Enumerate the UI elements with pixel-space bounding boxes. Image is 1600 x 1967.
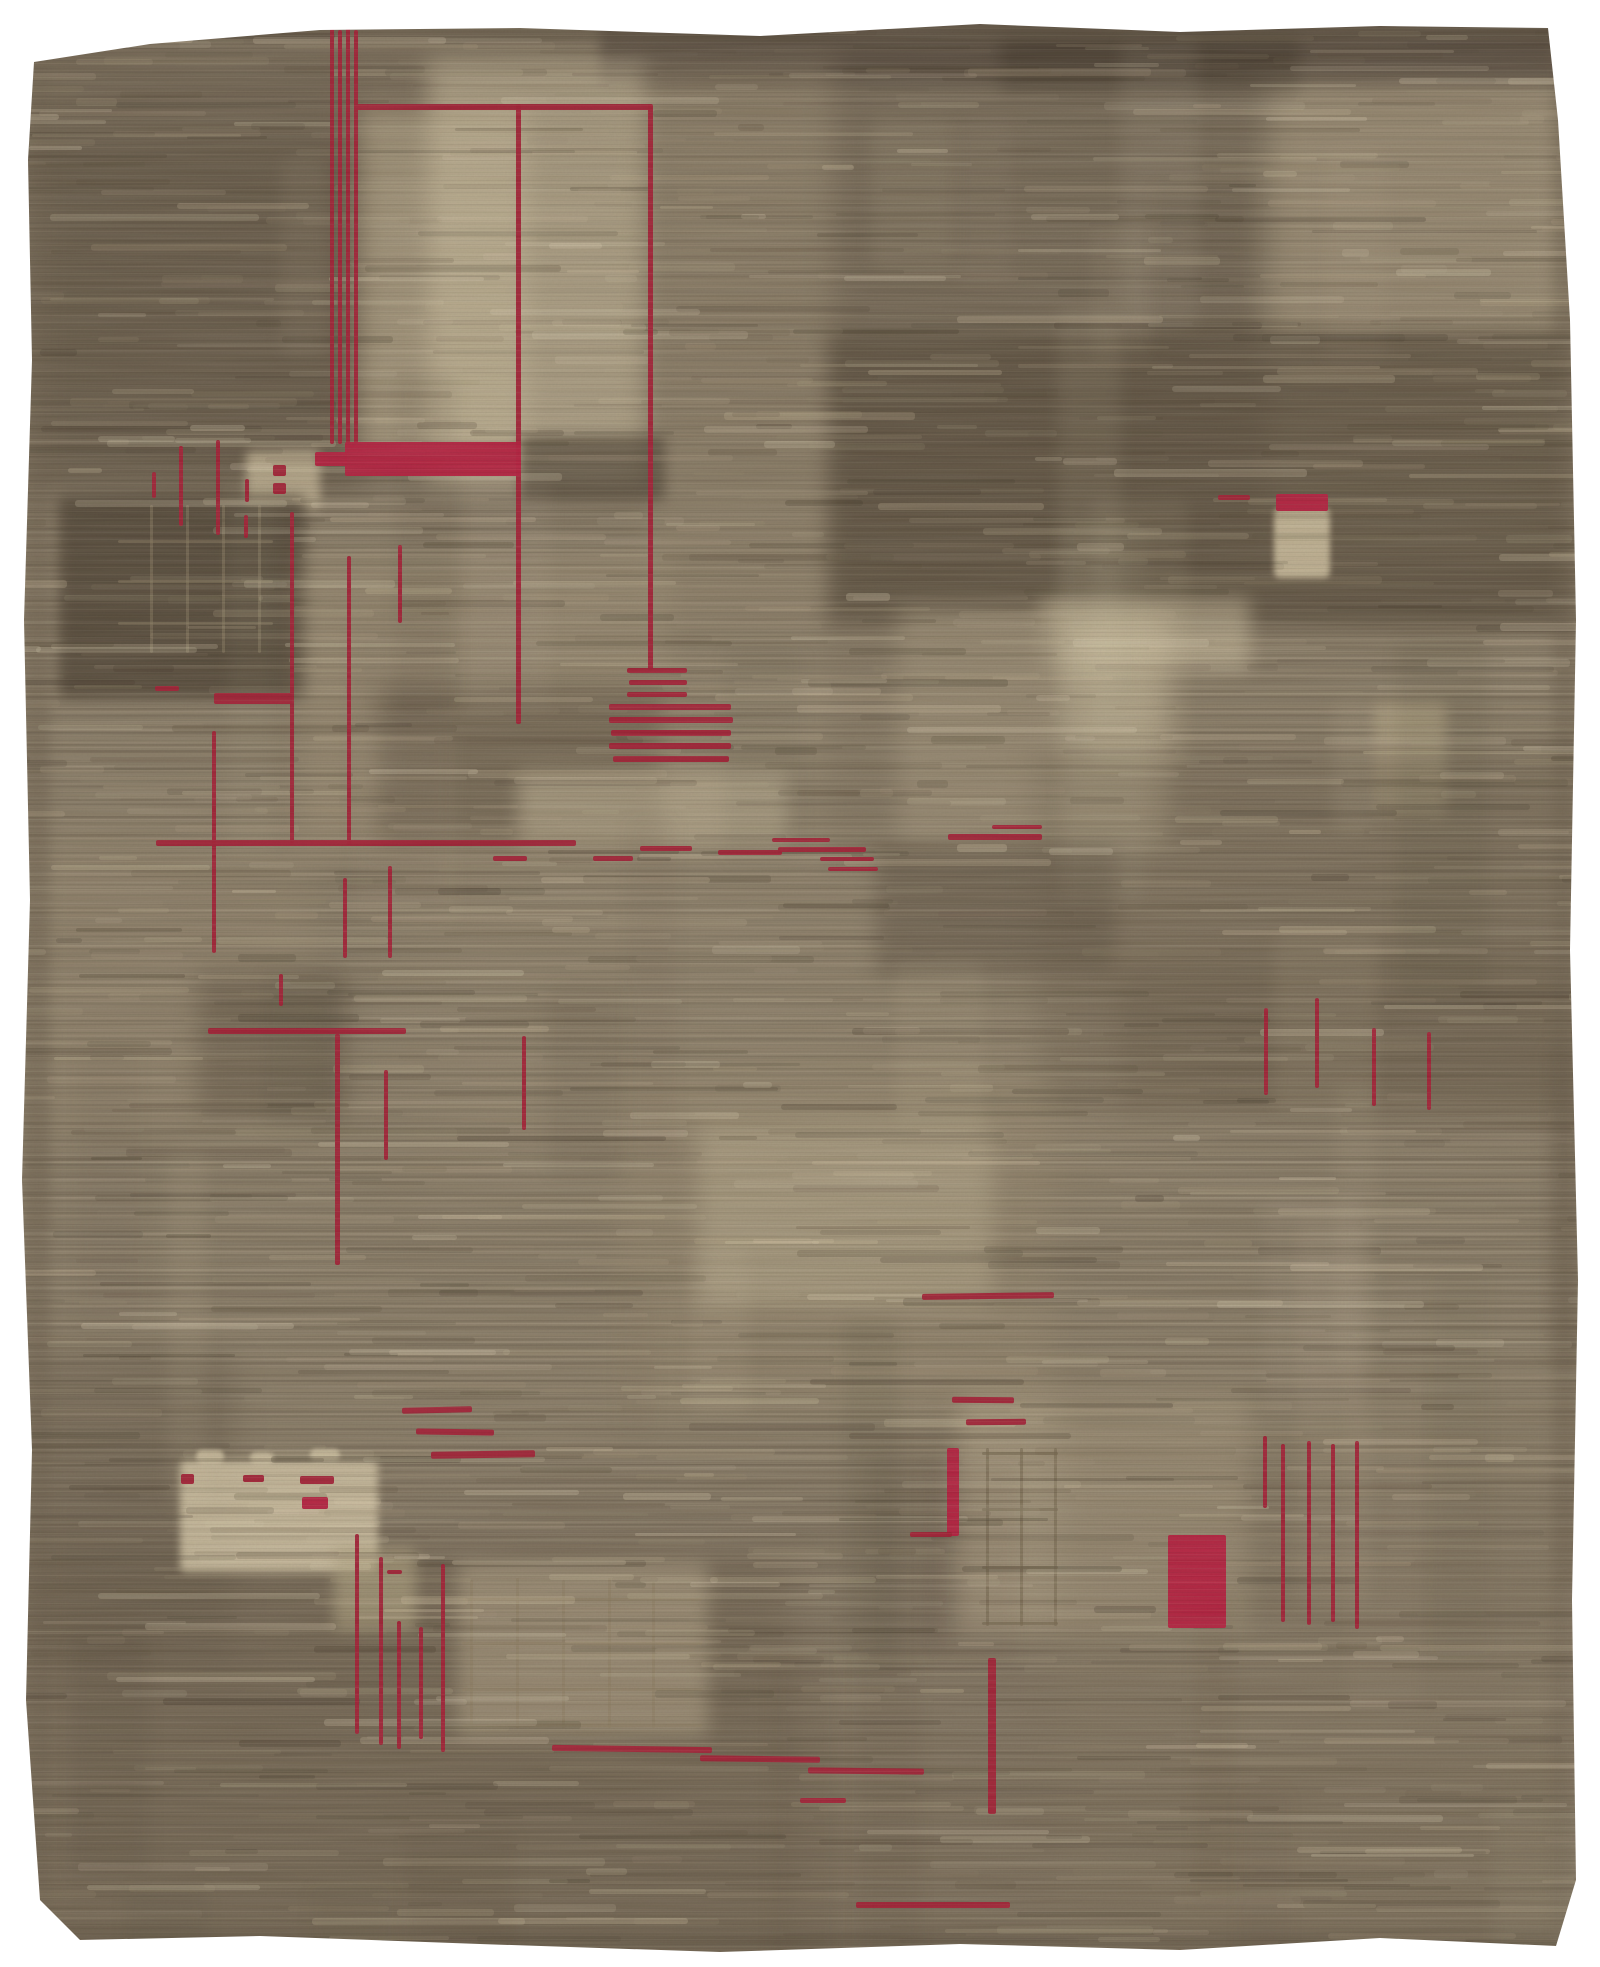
weave-streak [896, 94, 1059, 101]
weave-streak [1584, 814, 1600, 821]
weave-streak [1568, 224, 1600, 230]
red-accent-cluster-line-5 [441, 1564, 445, 1752]
weave-streak [83, 162, 145, 167]
weave-streak [697, 1160, 777, 1163]
weave-streak [23, 580, 68, 588]
weave-soft-band [1239, 1788, 1289, 1967]
weave-soft-band [79, 1046, 139, 1325]
red-accent-mid-dash-a [640, 846, 692, 851]
weave-streak [670, 1505, 730, 1509]
weave-streak [582, 810, 620, 814]
weave-streak [1556, 155, 1598, 160]
weave-streak [1075, 1495, 1252, 1500]
weave-streak [678, 196, 749, 201]
weave-streak [212, 1277, 414, 1283]
weave-streak [1098, 1937, 1160, 1942]
weave-streak [1578, 606, 1600, 614]
red-accent-slot-cap [1276, 494, 1328, 511]
weave-streak [1514, 778, 1600, 785]
weave-streak [610, 175, 770, 180]
weave-streak [1208, 460, 1363, 466]
weave-streak [684, 1473, 714, 1477]
weave-streak [1570, 902, 1600, 906]
weave-streak [738, 559, 784, 563]
weave-streak [1463, 1121, 1600, 1128]
weave-streak [174, 1769, 328, 1773]
weave-streak [0, 408, 144, 412]
weave-streak [1029, 1117, 1063, 1120]
red-accent-t-hline [208, 1028, 406, 1034]
weave-streak [437, 216, 589, 222]
weave-soft-band [1434, 1270, 1489, 1655]
weave-streak [732, 412, 780, 417]
weave-streak [154, 1567, 342, 1571]
weave-streak [0, 1515, 193, 1519]
red-accent-castle-bit-2 [243, 1475, 264, 1482]
weave-streak [598, 1195, 663, 1201]
weave-streak [345, 258, 454, 263]
weave-soft-band [924, 1464, 1016, 1667]
weave-streak [719, 1136, 756, 1140]
weave-streak [877, 1220, 1037, 1225]
red-accent-hang-2 [388, 866, 392, 958]
weave-streak [1117, 1312, 1209, 1319]
weave-streak [1426, 35, 1467, 40]
weave-streak [1260, 49, 1479, 52]
weave-streak [302, 554, 486, 558]
weave-streak [1032, 1843, 1209, 1848]
weave-streak [1263, 375, 1394, 383]
weave-streak [465, 1802, 596, 1809]
weave-streak [0, 1808, 79, 1814]
weave-streak [1103, 1032, 1267, 1037]
weave-streak [399, 218, 442, 224]
weave-streak [1406, 90, 1553, 95]
weave-streak [1077, 1756, 1171, 1760]
weave-streak [1269, 444, 1489, 450]
weave-streak [429, 1824, 480, 1827]
weave-streak [1297, 1847, 1462, 1853]
red-accent-quad-line-2 [1315, 998, 1319, 1088]
weave-streak [552, 927, 590, 934]
weave-streak [1279, 1177, 1336, 1180]
weave-streak [1506, 535, 1572, 543]
weave-streak [1531, 226, 1589, 230]
weave-streak [1498, 590, 1553, 597]
weave-streak [957, 844, 1007, 852]
weave-streak [845, 360, 999, 367]
weave-streak [766, 357, 809, 363]
weave-streak [699, 521, 765, 525]
red-accent-drip-4 [398, 545, 402, 623]
red-accent-left-tick-3 [216, 440, 220, 535]
weave-streak [791, 636, 905, 640]
weave-soft-band [281, 157, 327, 357]
weave-streak [746, 901, 899, 905]
weave-streak [1583, 31, 1600, 39]
weave-streak [676, 525, 720, 530]
weave-streak [847, 479, 1015, 483]
weave-streak [12, 1096, 55, 1100]
weave-streak [1409, 474, 1600, 478]
weave-streak [1185, 19, 1257, 22]
weave-streak [1347, 424, 1549, 430]
weave-streak [1160, 1767, 1367, 1771]
red-accent-cluster-line-2 [379, 1557, 383, 1745]
weave-streak [98, 1593, 320, 1599]
red-accent-comb-bar [214, 693, 292, 704]
weave-streak [256, 1343, 406, 1346]
weave-streak [1114, 469, 1307, 476]
weave-streak [884, 909, 1048, 915]
weave-streak [600, 614, 675, 620]
weave-streak [50, 214, 259, 222]
weave-soft-band [264, 969, 338, 1129]
weave-streak [249, 1474, 470, 1477]
weave-streak [55, 835, 238, 839]
weave-streak [549, 1879, 591, 1883]
weave-streak [764, 564, 922, 568]
red-accent-mid-hline [156, 840, 576, 846]
weave-streak [450, 150, 636, 156]
weave-soft-band [228, 477, 276, 856]
weave-streak [458, 1522, 565, 1529]
weave-streak [552, 1557, 665, 1562]
weave-streak [1583, 1049, 1600, 1055]
weave-streak [358, 1616, 479, 1619]
weave-streak [1043, 1417, 1195, 1424]
weave-streak [1471, 598, 1563, 602]
weave-streak [747, 1553, 843, 1559]
weave-streak [549, 1574, 634, 1580]
weave-streak [1188, 1122, 1256, 1127]
weave-streak [869, 87, 929, 92]
weave-streak [195, 1867, 230, 1870]
weave-streak [1480, 301, 1600, 306]
weave-streak [931, 736, 1005, 744]
weave-streak [1404, 1140, 1445, 1147]
weave-streak [955, 1881, 1016, 1889]
weave-streak [749, 543, 914, 548]
weave-streak [476, 1478, 677, 1483]
red-accent-band-line-1 [330, 28, 334, 444]
weave-streak [1094, 1606, 1156, 1613]
weave-streak [1169, 1443, 1271, 1446]
red-accent-stripe-w4 [609, 743, 731, 749]
weave-streak [677, 188, 714, 194]
weave-streak [429, 1245, 534, 1250]
weave-streak [749, 275, 961, 279]
weave-streak [745, 606, 811, 611]
red-accent-castle-bit-1 [181, 1474, 194, 1484]
weave-streak [610, 228, 768, 232]
weave-streak [101, 190, 226, 195]
weave-streak [903, 1403, 953, 1407]
weave-streak [1400, 248, 1458, 255]
weave-soft-band [859, 1651, 920, 1967]
weave-streak [764, 441, 836, 448]
weave-streak [899, 1938, 1079, 1943]
red-accent-dash-h [828, 867, 878, 871]
weave-streak [26, 154, 167, 158]
weave-streak [549, 243, 603, 249]
weave-soft-band [1264, 1197, 1360, 1412]
weave-streak [1020, 1037, 1227, 1041]
weave-streak [274, 1753, 331, 1756]
weave-streak [943, 925, 1096, 928]
red-accent-left-tick-1 [152, 472, 156, 498]
weave-streak [1486, 211, 1600, 216]
weave-soft-band [310, 1885, 391, 1967]
weave-streak [976, 1808, 1044, 1815]
weave-soft-band [1492, 1798, 1597, 1967]
weave-streak [978, 1065, 1138, 1073]
weave-streak [334, 185, 533, 190]
weave-streak [1549, 552, 1600, 557]
weave-streak [1279, 562, 1378, 567]
weave-streak [1576, 251, 1600, 255]
weave-streak [922, 653, 1057, 657]
weave-soft-band [871, 117, 953, 269]
weave-streak [878, 503, 1044, 509]
weave-streak [1509, 199, 1567, 206]
weave-streak [1399, 1611, 1580, 1619]
weave-streak [83, 1354, 235, 1357]
weave-streak [701, 378, 813, 383]
red-accent-comb-dash [155, 686, 179, 691]
weave-streak [167, 1616, 237, 1619]
red-accent-hang-1 [343, 878, 347, 958]
weave-streak [744, 1115, 906, 1118]
weave-streak [0, 1941, 213, 1946]
weave-streak [397, 319, 453, 325]
weave-streak [842, 746, 985, 750]
weave-streak [604, 540, 731, 545]
weave-streak [164, 1575, 350, 1579]
red-accent-cluster-line-3 [397, 1621, 401, 1749]
weave-streak [1590, 1140, 1600, 1144]
weave-streak [1583, 718, 1600, 726]
weave-streak [1173, 1135, 1200, 1141]
weave-streak [676, 306, 870, 312]
weave-streak [460, 1391, 540, 1395]
weave-streak [18, 1693, 66, 1700]
weave-streak [555, 356, 649, 364]
weave-streak [1250, 84, 1356, 88]
weave-streak [855, 733, 919, 740]
weave-streak [347, 948, 462, 952]
weave-streak [420, 1283, 469, 1286]
weave-streak [1165, 1338, 1208, 1344]
weave-streak [797, 790, 860, 796]
weave-streak [29, 146, 81, 150]
weave-streak [81, 653, 208, 656]
weave-streak [1500, 623, 1600, 630]
weave-streak [464, 1490, 580, 1495]
weave-streak [43, 1621, 185, 1624]
weave-streak [614, 512, 644, 519]
weave-soft-band [1324, 146, 1388, 366]
weave-streak [945, 1929, 1168, 1933]
weave-streak [333, 1065, 424, 1073]
red-accent-solid-bar [345, 442, 521, 476]
red-accent-dash-i [948, 834, 1042, 840]
weave-streak [240, 899, 326, 904]
weave-streak [694, 472, 744, 475]
weave-streak [1175, 816, 1278, 823]
weave-streak [733, 998, 833, 1002]
weave-soft-band [895, 960, 983, 1126]
weave-streak [988, 1261, 1120, 1269]
weave-streak [0, 1538, 143, 1543]
red-accent-five-line-5 [1355, 1441, 1359, 1629]
red-accent-l-bracket-foot [910, 1532, 952, 1537]
weave-streak [853, 45, 970, 50]
weave-streak [189, 1850, 339, 1856]
weave-streak [1176, 36, 1313, 41]
weave-streak [767, 164, 854, 169]
weave-streak [398, 1721, 581, 1728]
weave-streak [1551, 756, 1600, 760]
weave-streak [382, 970, 525, 976]
rug [0, 0, 1600, 1967]
weave-streak [449, 906, 513, 912]
weave-streak [1569, 993, 1600, 1001]
weave-streak [715, 1085, 781, 1092]
weave-streak [1408, 357, 1492, 362]
weave-streak [1492, 390, 1567, 397]
weave-streak [690, 1582, 780, 1587]
weave-streak [873, 489, 981, 495]
weave-streak [98, 313, 146, 317]
weave-streak [337, 1322, 456, 1325]
weave-streak [186, 1507, 275, 1514]
weave-streak [122, 1629, 289, 1636]
weave-soft-band [1397, 640, 1488, 1000]
weave-streak [360, 1737, 550, 1745]
weave-streak [41, 1409, 162, 1417]
weave-soft-band [72, 1636, 149, 1874]
weave-streak [1180, 840, 1221, 844]
weave-streak [413, 84, 610, 87]
weave-streak [586, 1868, 627, 1875]
weave-streak [1230, 1130, 1415, 1133]
weave-streak [520, 1467, 612, 1474]
weave-streak [1456, 258, 1597, 262]
weave-streak [438, 1054, 544, 1060]
weave-streak [574, 431, 675, 435]
weave-streak [58, 867, 90, 872]
weave-streak [284, 44, 478, 49]
weave-streak [412, 1235, 457, 1240]
weave-soft-band [355, 727, 457, 926]
red-accent-cap-dash [1218, 495, 1250, 500]
weave-streak [656, 1455, 847, 1460]
weave-streak [1247, 779, 1344, 784]
red-accent-left-tick-4 [245, 479, 249, 502]
weave-streak [10, 1337, 86, 1340]
weave-streak [98, 436, 175, 442]
weave-streak [289, 371, 397, 377]
red-accent-t-vline-a [384, 1070, 388, 1160]
weave-streak [17, 1008, 83, 1014]
weave-streak [0, 139, 95, 146]
weave-streak [124, 27, 182, 31]
weave-streak [12, 680, 135, 686]
weave-streak [1031, 214, 1119, 219]
weave-streak [462, 368, 605, 373]
weave-streak [118, 908, 169, 913]
weave-streak [1585, 758, 1600, 765]
weave-streak [318, 1142, 509, 1147]
weave-streak [249, 862, 294, 868]
weave-streak [1570, 659, 1600, 665]
weave-streak [800, 22, 871, 25]
weave-streak [1556, 74, 1600, 80]
weave-streak [872, 666, 900, 671]
weave-streak [50, 1181, 79, 1185]
weave-streak [754, 968, 798, 974]
weave-streak [493, 1411, 530, 1416]
weave-streak [1442, 120, 1529, 125]
weave-streak [540, 50, 736, 54]
weave-soft-band [958, 118, 1012, 283]
weave-streak [15, 1891, 96, 1898]
red-accent-cluster-line-1 [355, 1534, 359, 1734]
weave-streak [823, 66, 1039, 69]
weave-soft-band [619, 1281, 656, 1433]
weave-streak [390, 73, 547, 81]
weave-streak [555, 93, 636, 96]
weave-streak [1581, 328, 1600, 331]
weave-streak [594, 202, 632, 207]
weave-streak [690, 1830, 748, 1836]
weave-streak [606, 574, 759, 577]
weave-streak [223, 1164, 270, 1168]
weave-streak [95, 918, 122, 922]
weave-streak [1311, 1854, 1474, 1858]
weave-streak [51, 421, 187, 426]
weave-streak [275, 912, 318, 919]
weave-streak [1589, 209, 1600, 212]
red-accent-dash-j [992, 825, 1042, 829]
weave-streak [324, 1364, 551, 1370]
weave-streak [715, 84, 759, 90]
weave-streak [354, 995, 526, 1002]
weave-streak [109, 1458, 324, 1462]
weave-streak [306, 1536, 389, 1543]
weave-streak [506, 1654, 691, 1659]
weave-streak [623, 1493, 711, 1500]
weave-streak [1463, 146, 1600, 154]
weave-streak [812, 1240, 879, 1244]
weave-streak [175, 438, 251, 443]
weave-soft-band [772, 1653, 838, 1967]
weave-streak [541, 877, 710, 883]
weave-streak [1436, 78, 1495, 84]
weave-streak [40, 349, 77, 356]
weave-streak [38, 725, 143, 730]
weave-streak [0, 756, 30, 763]
weave-streak [1378, 1202, 1496, 1209]
weave-streak [1247, 509, 1414, 514]
red-accent-quad-line-4 [1427, 1032, 1431, 1110]
weave-streak [514, 1904, 616, 1912]
red-accent-left-tick-5 [244, 515, 248, 538]
weave-streak [549, 1766, 768, 1771]
weave-streak [846, 593, 890, 600]
weave-streak [1124, 1023, 1159, 1026]
